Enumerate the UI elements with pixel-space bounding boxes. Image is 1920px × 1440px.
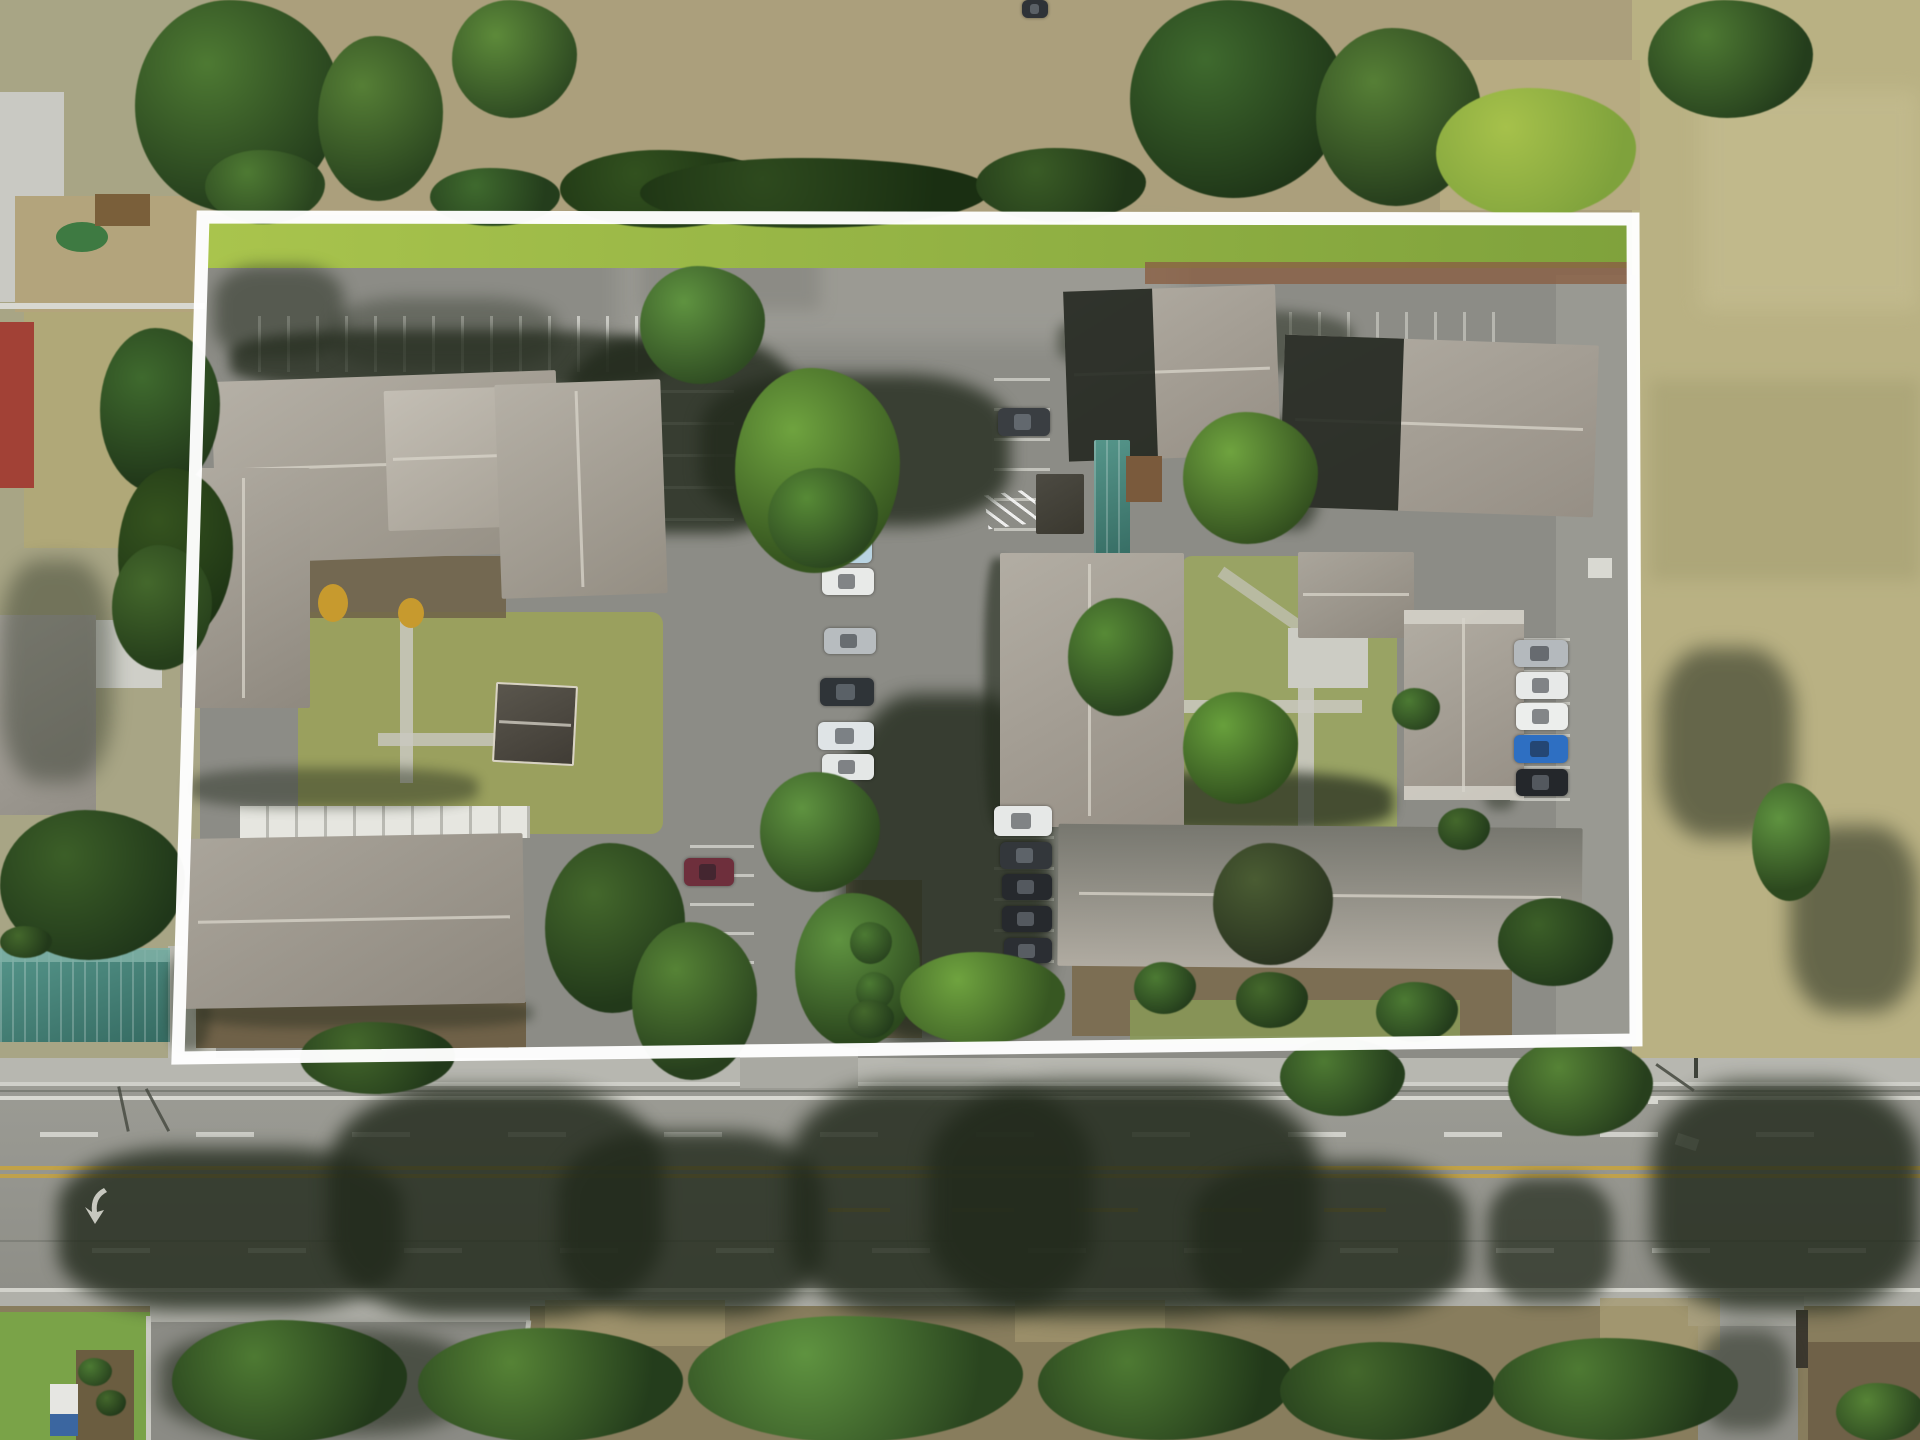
car-gray-nw — [998, 408, 1050, 436]
car-silver-1 — [824, 628, 876, 654]
car-silver-1-windshield — [840, 634, 858, 649]
car-black-2 — [1002, 906, 1052, 932]
aerial-photo-stage — [0, 0, 1920, 1440]
car-white-1 — [822, 568, 874, 595]
field-olive-blotch — [1650, 380, 1920, 580]
car-white-e2 — [1516, 703, 1568, 730]
bldg-small-dark-hip — [492, 682, 578, 766]
streetlight-pole — [1694, 1058, 1698, 1078]
red-roof-house — [0, 322, 34, 488]
car-silver-e-windshield — [1530, 646, 1548, 661]
stalls-sw-1 — [690, 845, 754, 848]
street-sign-panel — [50, 1384, 78, 1416]
yellow-shrub-2 — [398, 598, 424, 628]
bldg-east-5-ridge — [1462, 618, 1465, 793]
car-white-van — [818, 722, 874, 750]
dark-carport — [1036, 474, 1084, 534]
road-shadow-8 — [1652, 1082, 1920, 1310]
car-dark-suv-2-windshield — [1016, 848, 1034, 863]
car-maroon-windshield — [699, 864, 716, 880]
bldg-east-wing — [494, 379, 667, 599]
car-black-1-windshield — [1017, 880, 1034, 895]
car-white-e2-windshield — [1532, 709, 1550, 724]
car-gray-nw-windshield — [1014, 414, 1032, 430]
site-drive-apron — [740, 1044, 858, 1088]
nw-path-v — [400, 618, 413, 783]
bldg-east-5-gable — [1404, 610, 1524, 624]
pergola-brown — [1126, 456, 1162, 502]
shadow-nw-lot — [332, 298, 557, 370]
bldg-east-5-gable — [1404, 786, 1524, 800]
lane-dashes-upper-11 — [1600, 1132, 1658, 1137]
utility-box — [1588, 558, 1612, 578]
street-sign-blue — [50, 1414, 78, 1436]
car-silver-e — [1514, 640, 1568, 667]
bldg-west-wing-ridge — [242, 478, 245, 699]
car-black-1 — [1002, 874, 1052, 900]
shadow-nw-corner — [214, 266, 344, 358]
tl-fence — [0, 303, 205, 309]
playset-trampoline — [56, 222, 108, 252]
lane-dashes-upper-1 — [40, 1132, 98, 1137]
teal-walkway-canopy — [1094, 440, 1130, 564]
car-black-e-windshield — [1532, 775, 1550, 790]
car-blue-e-windshield — [1530, 741, 1548, 757]
car-dark-suv-1 — [820, 678, 874, 706]
stalls-sw-3 — [690, 903, 754, 906]
bldg-ne-4-hip-ridge — [1303, 593, 1410, 596]
side-street-curb-left — [146, 1316, 151, 1440]
playset-structure — [95, 194, 150, 226]
car-top-black — [1022, 0, 1048, 18]
car-maroon — [684, 858, 734, 886]
teal-metal-roof — [0, 950, 170, 1042]
lane-dashes-upper-10 — [1444, 1132, 1502, 1137]
lane-dashes-upper-2 — [196, 1132, 254, 1137]
shadow-courtyard-hedge — [188, 768, 478, 808]
belt-tree — [172, 1320, 407, 1440]
belt-tree — [418, 1328, 683, 1440]
car-white-2-windshield — [838, 760, 856, 775]
road-shadow-6 — [1192, 1162, 1467, 1314]
road-shadow-7 — [1488, 1178, 1613, 1303]
car-blue-e — [1514, 735, 1568, 763]
car-white-pickup-windshield — [1011, 813, 1031, 830]
bldg-small-dark-hip-ridge — [499, 721, 571, 728]
right-fence — [1796, 1310, 1808, 1368]
car-top-black-windshield — [1030, 4, 1039, 14]
bldg-sw-long — [183, 833, 526, 1009]
belt-tree — [1836, 1383, 1920, 1440]
yellow-shrub-1 — [318, 584, 348, 622]
bldg-ne-4-hip — [1298, 552, 1414, 638]
bldg-east-wing-ridge — [574, 391, 584, 588]
car-black-2-windshield — [1017, 912, 1034, 927]
field-light-blotch — [1700, 90, 1920, 310]
top-hedge-lime — [208, 220, 1632, 268]
belt-tree — [688, 1316, 1023, 1440]
car-dark-suv-1-windshield — [836, 684, 854, 700]
bldg-ne-1-shaded-side — [1063, 289, 1158, 462]
car-dark-suv-2 — [1000, 842, 1052, 869]
bldg-ne-2-long — [1279, 335, 1599, 518]
road-shadow-3 — [558, 1132, 823, 1314]
car-black-e — [1516, 769, 1568, 796]
car-white-e1 — [1516, 672, 1568, 699]
bldg-sw-long-ridge — [198, 915, 511, 923]
stalls-mid-east-1 — [994, 378, 1050, 381]
car-dark-3-windshield — [1018, 944, 1034, 958]
car-white-pickup — [994, 806, 1052, 836]
left-strip-shadow — [0, 560, 112, 782]
car-white-e1-windshield — [1532, 678, 1550, 693]
car-white-van-windshield — [835, 728, 854, 744]
car-white-1-windshield — [838, 574, 856, 589]
hedge-dirt-strip — [1145, 262, 1630, 284]
